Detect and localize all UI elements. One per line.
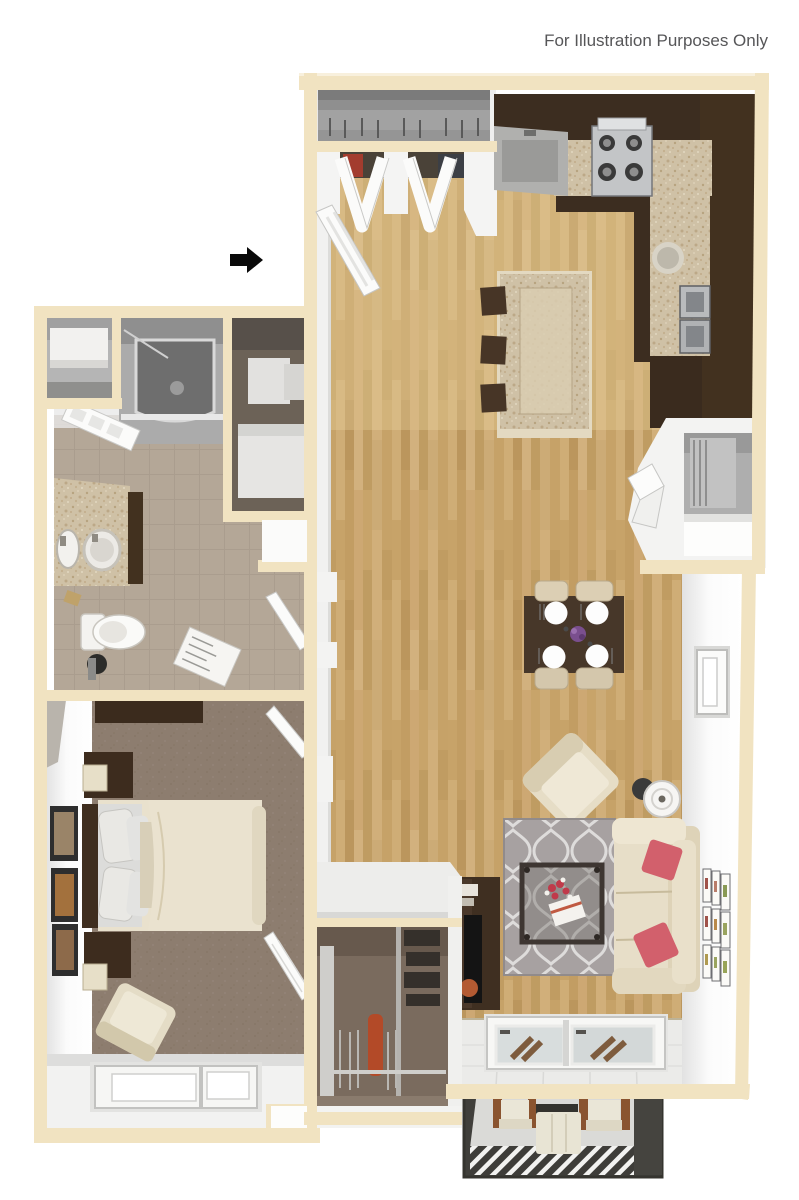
svg-text:For Illustration Purposes Only: For Illustration Purposes Only: [544, 31, 768, 50]
